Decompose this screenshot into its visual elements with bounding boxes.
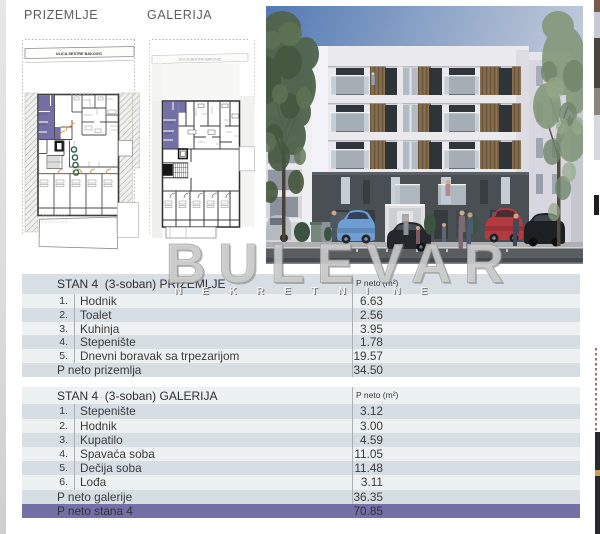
svg-text:ULICA SESTRE BAKOVIĆ: ULICA SESTRE BAKOVIĆ [179,57,222,62]
svg-text:ULICA SESTRE BAKOVIĆ: ULICA SESTRE BAKOVIĆ [56,51,103,56]
